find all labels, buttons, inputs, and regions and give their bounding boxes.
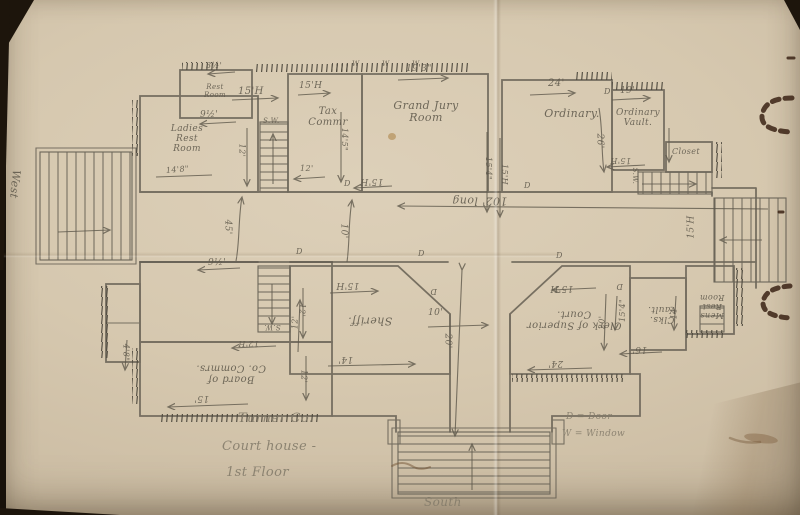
- room-label-ladies-rest: Ladies Rest Room: [158, 124, 216, 154]
- dim-cross-hall: 45': [223, 219, 233, 234]
- door-mark: D: [430, 286, 437, 295]
- northeast-stairwell: [638, 172, 712, 194]
- dim-sw-room-depth: 12': [296, 304, 305, 318]
- dim-west-hall: 12'H: [238, 338, 259, 347]
- title-line-3: 1st Floor: [226, 466, 289, 481]
- door-mark: D: [418, 250, 425, 259]
- room-label-mens-rest: Mens Rest Room: [690, 292, 734, 319]
- stairwell-mark-nw: S.W.: [263, 118, 280, 126]
- dim-ladies-width: 9½': [200, 110, 218, 120]
- dim-ordinary-depth: 26': [595, 133, 605, 148]
- dim-tax-depth: 14'5": [339, 128, 348, 151]
- dim-clerk-depth: 20': [598, 316, 607, 330]
- dim-ordinary-width: 24': [548, 78, 565, 89]
- title-line-1: Turner Co.: [238, 412, 313, 427]
- window-mark: W: [382, 61, 390, 69]
- dim-clerks-vault-depth: 14': [670, 306, 679, 320]
- south-entrance-stairs: [398, 432, 550, 494]
- dim-closet-west: 4'8": [120, 344, 129, 362]
- door-mark: D: [344, 180, 351, 189]
- stairwell-mark-center: S.W.: [264, 322, 281, 330]
- door-mark: D: [604, 88, 611, 97]
- dim-clerks-vault-width: 16': [632, 344, 647, 354]
- dim-south-hall-length: 20': [443, 333, 453, 348]
- dim-south-hall-width: 10': [428, 308, 443, 318]
- floor-plan-linework: [0, 0, 800, 515]
- dim-ceiling-height-4: 15'H: [610, 155, 631, 164]
- dim-vault-width: 19': [620, 86, 635, 96]
- title-line-2: Court house -: [222, 440, 316, 455]
- dim-clerk-width: 24': [548, 358, 563, 368]
- window-mark: W: [352, 61, 360, 69]
- stairwell-mark-ne: S.W.: [630, 168, 638, 185]
- room-label-sheriff: Sheriff.: [338, 314, 402, 326]
- dim-rest-nw-width: 3½': [206, 62, 222, 71]
- dim-ceiling-height-5: 15'H: [687, 215, 697, 238]
- door-mark: D: [524, 182, 531, 191]
- dim-ceiling-height-2: 15'H: [299, 81, 322, 91]
- room-label-rest-nw: Rest Room: [192, 84, 238, 100]
- west-entrance-stairs: [40, 152, 132, 260]
- dim-mid-depth-2: 15'H: [499, 164, 508, 185]
- door-mark: D: [556, 252, 563, 261]
- dim-corridor-length: 102' long: [452, 194, 507, 206]
- room-label-commissioners: Board of Co. Commrs.: [188, 362, 274, 384]
- door-mark: D: [296, 248, 303, 257]
- dim-clerk-depth-2: 15'4": [619, 299, 628, 322]
- room-label-ordinary: Ordinary.: [534, 108, 610, 120]
- dim-ceiling-height-1: 15'H: [238, 86, 264, 97]
- room-label-grand-jury: Grand Jury Room: [378, 100, 474, 125]
- door-mark: D: [616, 281, 623, 290]
- dim-sw-room-width: 9½': [208, 258, 226, 268]
- dim-sheriff-width: 14': [338, 354, 353, 364]
- dim-ladies-depth: 12': [236, 144, 245, 158]
- legend-door: D = Door: [566, 412, 612, 422]
- dim-tax-width: 12': [300, 165, 314, 174]
- orientation-south: South: [424, 496, 462, 509]
- dim-ceiling-height-3: 15'H: [360, 176, 383, 186]
- orientation-west: West: [7, 169, 22, 199]
- dim-sheriff-depth: 12': [291, 316, 300, 330]
- dim-board-width: 15': [194, 393, 209, 403]
- room-label-tax-commissioner: Tax Commr: [300, 106, 356, 128]
- northwest-stairwell: [260, 122, 288, 192]
- dim-ceiling-height-7: 15'H: [550, 283, 573, 293]
- room-label-ordinary-vault: Ordinary Vault.: [614, 108, 662, 128]
- dim-corridor-width: 10': [339, 223, 349, 238]
- photo-of-floor-plan: Rest Room 3½' Ladies Rest Room 9½' 12' 1…: [0, 0, 800, 515]
- dim-ceiling-height-6: 15'H: [336, 280, 359, 290]
- window-mark: W: [412, 61, 420, 69]
- legend-window: W = Window: [562, 429, 625, 439]
- dim-mid-depth-1: 15'4": [483, 157, 492, 180]
- room-label-clerk: Clerk of Superior Court.: [516, 308, 632, 330]
- dim-board-depth: 12': [298, 370, 307, 384]
- room-label-closet: Closet: [672, 148, 700, 157]
